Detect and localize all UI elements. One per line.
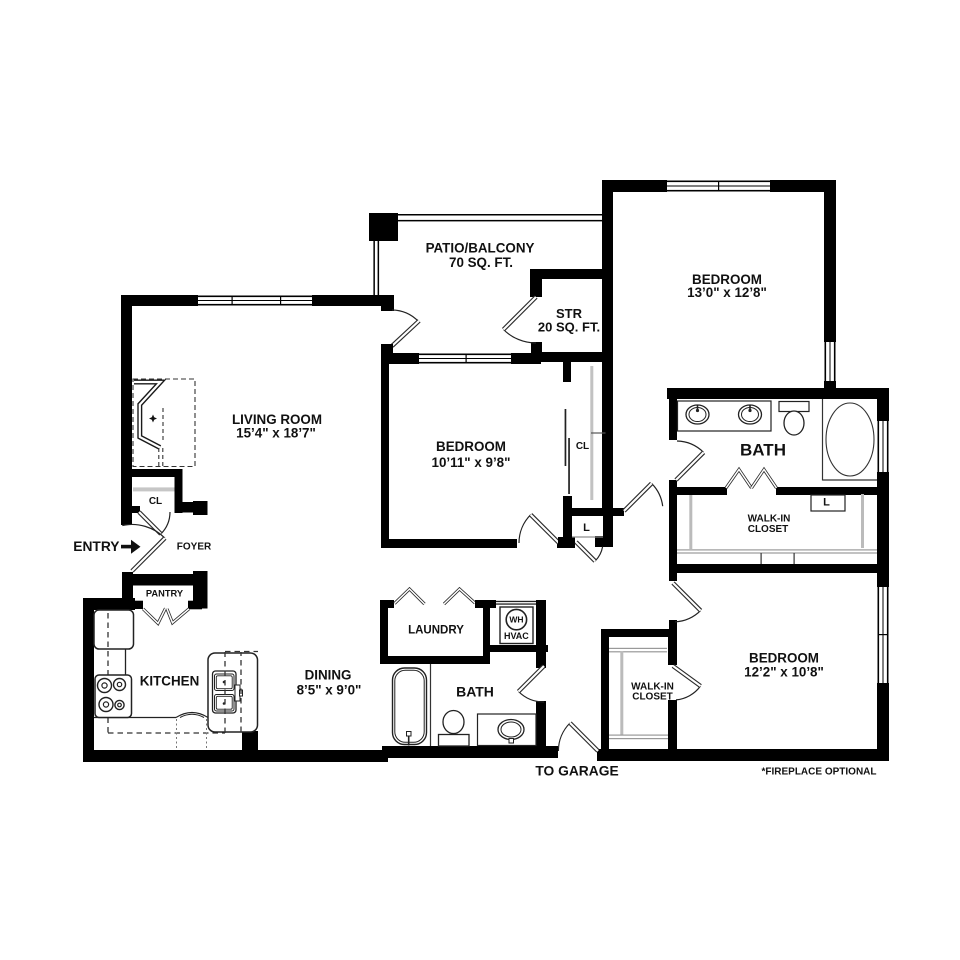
svg-text:BEDROOM: BEDROOM	[436, 439, 506, 454]
svg-text:WALK-IN: WALK-IN	[748, 514, 791, 525]
svg-text:L: L	[583, 522, 590, 534]
svg-text:12’2" x 10’8": 12’2" x 10’8"	[744, 665, 824, 680]
svg-text:L: L	[823, 497, 830, 509]
svg-text:BATH: BATH	[740, 441, 786, 460]
svg-text:LAUNDRY: LAUNDRY	[408, 625, 464, 637]
svg-text:CLOSET: CLOSET	[748, 524, 789, 535]
svg-text:KITCHEN: KITCHEN	[140, 673, 200, 688]
svg-text:*FIREPLACE OPTIONAL: *FIREPLACE OPTIONAL	[761, 767, 876, 778]
svg-text:BEDROOM: BEDROOM	[749, 651, 819, 666]
svg-text:TO GARAGE: TO GARAGE	[535, 764, 618, 779]
svg-text:8’5" x 9’0": 8’5" x 9’0"	[297, 682, 362, 697]
svg-text:ENTRY: ENTRY	[73, 539, 119, 554]
svg-text:70 SQ. FT.: 70 SQ. FT.	[449, 255, 513, 270]
svg-text:15’4" x 18’7": 15’4" x 18’7"	[236, 425, 316, 440]
svg-text:FOYER: FOYER	[177, 542, 212, 553]
svg-text:10’11" x 9’8": 10’11" x 9’8"	[432, 455, 511, 470]
svg-text:HVAC: HVAC	[504, 631, 529, 641]
svg-text:CL: CL	[149, 496, 162, 507]
svg-text:PANTRY: PANTRY	[146, 588, 184, 598]
svg-text:DINING: DINING	[305, 667, 352, 682]
svg-text:PATIO/BALCONY: PATIO/BALCONY	[426, 240, 535, 255]
svg-text:WH: WH	[509, 615, 523, 625]
svg-text:BATH: BATH	[456, 684, 494, 700]
svg-text:20 SQ. FT.: 20 SQ. FT.	[538, 319, 600, 334]
svg-text:13’0" x 12’8": 13’0" x 12’8"	[687, 285, 767, 300]
svg-text:CL: CL	[576, 441, 589, 452]
svg-text:CLOSET: CLOSET	[632, 692, 673, 703]
